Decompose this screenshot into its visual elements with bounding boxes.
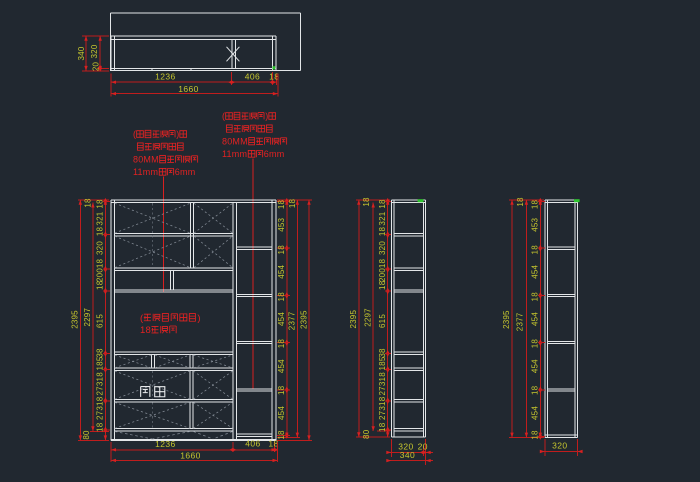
- svg-text:454: 454: [277, 264, 286, 278]
- svg-text:2395: 2395: [349, 310, 358, 329]
- svg-text:2377: 2377: [516, 312, 525, 331]
- svg-text:320: 320: [378, 241, 387, 255]
- svg-text:2395: 2395: [70, 310, 79, 329]
- svg-text:454: 454: [530, 406, 539, 420]
- svg-text:80MM: 80MM: [133, 154, 159, 164]
- svg-text:406: 406: [245, 72, 260, 82]
- svg-text:454: 454: [277, 312, 286, 326]
- svg-text:): ): [265, 111, 268, 121]
- svg-text:615: 615: [378, 314, 387, 328]
- svg-text:18: 18: [277, 339, 286, 349]
- svg-text:273: 273: [96, 381, 105, 395]
- svg-text:1236: 1236: [155, 71, 176, 81]
- svg-text:20: 20: [92, 62, 101, 72]
- svg-text:2395: 2395: [299, 310, 308, 329]
- svg-text:2377: 2377: [288, 311, 297, 330]
- svg-text:80: 80: [362, 429, 371, 439]
- svg-text:2395: 2395: [502, 310, 511, 329]
- svg-text:6mm: 6mm: [175, 167, 196, 177]
- svg-text:615: 615: [96, 314, 105, 328]
- svg-text:18: 18: [378, 422, 387, 432]
- svg-text:18: 18: [530, 292, 539, 302]
- svg-text:38: 38: [378, 348, 387, 358]
- svg-text:406: 406: [245, 439, 260, 449]
- svg-text:(: (: [133, 129, 136, 139]
- svg-text:18: 18: [277, 200, 286, 210]
- svg-text:321: 321: [96, 211, 105, 225]
- svg-text:80MM: 80MM: [222, 136, 248, 146]
- svg-text:18: 18: [378, 280, 387, 290]
- svg-text:11mm: 11mm: [133, 167, 158, 177]
- svg-text:18: 18: [530, 245, 539, 255]
- svg-text:320: 320: [96, 241, 105, 255]
- svg-text:18: 18: [378, 259, 387, 269]
- svg-text:18: 18: [96, 422, 105, 432]
- svg-text:200: 200: [378, 268, 387, 282]
- svg-text:18: 18: [378, 227, 387, 237]
- svg-text:18: 18: [530, 339, 539, 349]
- svg-text:(: (: [222, 111, 225, 121]
- svg-text:6mm: 6mm: [264, 149, 285, 159]
- svg-text:38: 38: [96, 348, 105, 358]
- svg-text:18: 18: [96, 199, 105, 209]
- svg-text:18: 18: [362, 197, 371, 207]
- svg-text:273: 273: [378, 381, 387, 395]
- svg-text:18: 18: [96, 280, 105, 290]
- svg-text:320: 320: [90, 44, 99, 58]
- svg-text:18: 18: [530, 430, 539, 440]
- svg-text:454: 454: [277, 406, 286, 420]
- svg-text:18: 18: [378, 199, 387, 209]
- svg-text:18: 18: [516, 197, 525, 207]
- svg-text:454: 454: [530, 312, 539, 326]
- svg-text:454: 454: [277, 359, 286, 373]
- svg-text:18: 18: [530, 200, 539, 210]
- svg-text:273: 273: [96, 406, 105, 420]
- svg-text:1660: 1660: [180, 450, 201, 460]
- svg-text:453: 453: [277, 217, 286, 231]
- svg-text:80: 80: [82, 430, 91, 440]
- svg-text:18: 18: [96, 259, 105, 269]
- svg-text:18: 18: [277, 292, 286, 302]
- svg-text:273: 273: [378, 406, 387, 420]
- svg-text:18: 18: [140, 325, 151, 336]
- svg-text:185: 185: [96, 356, 105, 370]
- svg-text:18: 18: [378, 372, 387, 382]
- svg-text:200: 200: [96, 268, 105, 282]
- svg-text:): ): [197, 313, 200, 324]
- svg-text:321: 321: [378, 211, 387, 225]
- svg-text:2297: 2297: [83, 308, 92, 327]
- svg-text:18: 18: [288, 199, 297, 209]
- svg-text:18: 18: [277, 245, 286, 255]
- svg-text:11mm: 11mm: [222, 149, 247, 159]
- svg-text:453: 453: [530, 217, 539, 231]
- svg-text:18: 18: [96, 372, 105, 382]
- svg-text:18: 18: [96, 396, 105, 406]
- svg-text:18: 18: [277, 385, 286, 395]
- svg-text:18: 18: [84, 198, 93, 208]
- svg-text:1660: 1660: [178, 84, 199, 94]
- svg-text:): ): [176, 129, 179, 139]
- svg-text:2297: 2297: [363, 308, 372, 327]
- svg-text:454: 454: [530, 264, 539, 278]
- svg-text:1236: 1236: [155, 439, 176, 449]
- svg-text:340: 340: [400, 450, 415, 460]
- svg-text:20: 20: [418, 441, 428, 451]
- svg-text:340: 340: [77, 46, 86, 60]
- svg-text:454: 454: [530, 359, 539, 373]
- svg-text:18: 18: [530, 385, 539, 395]
- svg-text:320: 320: [552, 440, 567, 450]
- svg-text:18: 18: [378, 396, 387, 406]
- svg-text:185: 185: [378, 356, 387, 370]
- svg-text:18: 18: [96, 227, 105, 237]
